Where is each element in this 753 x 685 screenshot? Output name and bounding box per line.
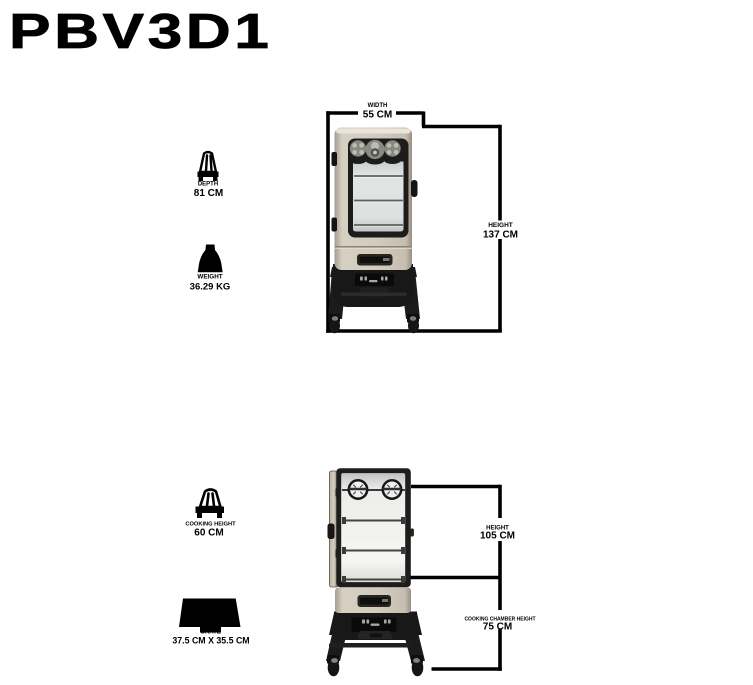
- svg-text:60 CM: 60 CM: [194, 528, 223, 539]
- svg-text:37.5 CM X 35.5 CM: 37.5 CM X 35.5 CM: [172, 636, 249, 646]
- svg-text:81 CM: 81 CM: [194, 188, 223, 199]
- svg-text:55 CM: 55 CM: [363, 110, 392, 121]
- svg-text:105 CM: 105 CM: [480, 531, 515, 542]
- svg-text:DEPTH: DEPTH: [198, 182, 218, 188]
- svg-text:HEIGHT: HEIGHT: [488, 222, 513, 229]
- svg-text:75 CM: 75 CM: [483, 622, 512, 633]
- svg-text:36.29 KG: 36.29 KG: [190, 282, 231, 293]
- svg-text:WEIGHT: WEIGHT: [197, 274, 222, 281]
- svg-text:WIDTH: WIDTH: [368, 103, 388, 109]
- svg-text:137 CM: 137 CM: [483, 230, 518, 241]
